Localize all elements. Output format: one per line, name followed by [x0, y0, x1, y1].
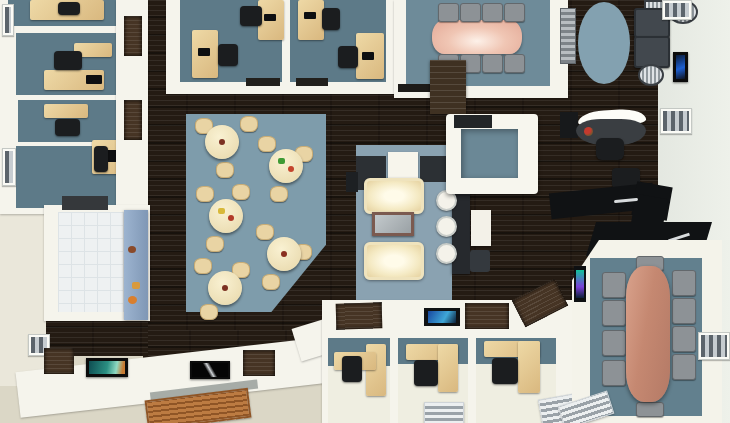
window-east-2 — [660, 108, 692, 134]
office-w3-chair — [55, 119, 80, 136]
wall-art-streak — [190, 361, 230, 379]
reception-cabinet — [560, 112, 578, 138]
oval-rug — [578, 2, 630, 84]
window-west-2 — [2, 148, 16, 186]
cafe-table-item — [281, 251, 287, 257]
floorplan-render — [0, 0, 730, 423]
office-w2-monitor — [86, 75, 102, 84]
cafe-chair — [256, 224, 274, 240]
wall-art-streak-canvas — [192, 363, 228, 377]
conference-chair — [438, 3, 459, 22]
conference-east-table — [626, 266, 670, 402]
meeting-pod-floor — [461, 129, 518, 178]
office-n2-chair-b — [338, 46, 358, 68]
conference-chair — [672, 298, 696, 324]
office-s3-desk — [518, 341, 540, 393]
cafe-chair — [216, 162, 234, 178]
conference-chair — [602, 300, 626, 326]
office-s2-threshold — [424, 402, 464, 423]
office-s2-chair — [414, 360, 438, 386]
shelf-niche-1 — [124, 16, 142, 56]
south-wall-tablet-screen — [428, 311, 456, 323]
office-n1-doormat — [246, 78, 280, 86]
white-stool — [436, 216, 457, 237]
wall-art-blue — [673, 52, 688, 82]
kitchen-snack-1 — [128, 246, 136, 253]
office-n2-monitor-b — [362, 52, 374, 60]
white-side-table — [471, 210, 491, 246]
cafe-table-item — [278, 158, 285, 164]
cafe-chair — [206, 236, 224, 252]
lounge-sofa — [364, 242, 424, 280]
white-stool — [436, 243, 457, 264]
wood-cabinet — [430, 60, 466, 114]
conference-east-tv-screen — [576, 270, 584, 298]
glass-door-panel — [560, 8, 576, 64]
kitchen-snack-2 — [132, 282, 140, 289]
lounge-speaker — [346, 172, 358, 192]
conference-chair — [460, 3, 481, 22]
cafe-table-item — [219, 139, 225, 145]
reception-chair — [596, 138, 624, 160]
office-w4-chair — [94, 146, 108, 172]
conference-chair — [504, 3, 525, 22]
wall-art-blue-canvas — [676, 55, 685, 79]
lounge-white-box — [388, 152, 418, 180]
south-wall-panel — [336, 302, 383, 330]
kitchen-snack-3 — [128, 296, 137, 304]
kitchen-counter — [124, 210, 148, 320]
window-east-3 — [698, 332, 730, 360]
south-wall-panel — [465, 303, 509, 329]
lounge-coffee-table — [372, 212, 414, 236]
office-w3-desk — [44, 104, 88, 118]
office-n2-doormat — [296, 78, 328, 86]
conference-chair — [504, 54, 525, 73]
conference-north-table — [432, 20, 522, 54]
office-s3-chair — [492, 358, 518, 384]
office-n1-chair-b — [218, 44, 238, 66]
window-east-1 — [662, 0, 692, 20]
cafe-table-item — [218, 208, 225, 214]
office-n2-monitor-a — [304, 12, 316, 19]
lounge-cabinet-right — [420, 156, 448, 182]
side-table-drum — [638, 64, 664, 86]
wall-bench — [243, 350, 275, 376]
conference-chair — [482, 54, 503, 73]
reception-flowers — [584, 127, 593, 136]
office-n1-monitor-a — [264, 14, 276, 21]
cafe-chair — [200, 304, 218, 320]
conference-chair — [672, 354, 696, 380]
cafe-chair — [262, 274, 280, 290]
office-w1-chair — [58, 2, 80, 15]
lounge-sofa — [364, 178, 424, 214]
conference-chair — [636, 402, 664, 417]
office-n1-monitor-b — [198, 48, 210, 56]
cafe-table-item — [222, 285, 228, 291]
kitchen-appliance — [62, 196, 108, 210]
cafe-table — [269, 149, 303, 183]
office-n2-chair-a — [322, 8, 340, 30]
cafe-chair — [196, 186, 214, 202]
cafe-chair — [240, 116, 258, 132]
cafe-chair — [232, 184, 250, 200]
cafe-chair — [270, 186, 288, 202]
wall-art-landscape-canvas — [89, 361, 125, 374]
window-west-1 — [2, 4, 14, 36]
office-n2-desk-a — [298, 0, 324, 40]
cafe-table — [209, 199, 243, 233]
cafe-chair — [258, 136, 276, 152]
cafe-chair — [194, 258, 212, 274]
meeting-pod-skylight — [454, 115, 492, 128]
shelf-niche-2 — [124, 100, 142, 140]
office-n1-chair-a — [240, 6, 262, 26]
conference-north-doormat — [398, 84, 432, 92]
office-s2-desk — [438, 344, 458, 392]
cafe-table-item — [228, 215, 234, 221]
conference-chair — [482, 3, 503, 22]
kitchen-tile-floor — [58, 212, 130, 312]
office-s1-chair — [342, 356, 362, 382]
conference-chair — [672, 270, 696, 296]
cafe-table-item — [288, 166, 294, 172]
office-w2-chair — [54, 51, 82, 70]
conference-chair — [602, 272, 626, 298]
dark-stool — [470, 250, 490, 272]
conference-chair — [602, 330, 626, 356]
conference-chair — [602, 360, 626, 386]
wall-bench — [44, 348, 74, 374]
conference-chair — [672, 326, 696, 352]
wall-art-landscape — [86, 358, 128, 377]
